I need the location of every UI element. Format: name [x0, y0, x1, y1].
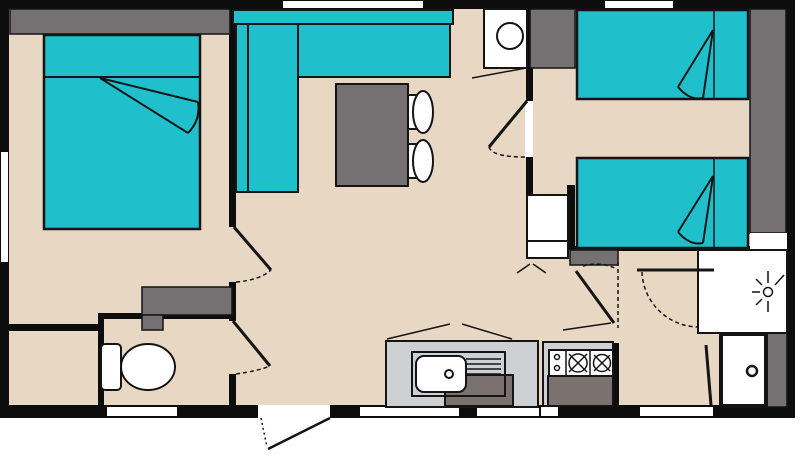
double-bed: [44, 35, 200, 229]
floor-plan-canvas: [0, 0, 800, 457]
kitchen-side-cabinet: [570, 250, 618, 265]
window-kitchen-2: [477, 407, 539, 416]
oven-front: [548, 376, 613, 406]
window-top-living: [283, 1, 423, 8]
storage-cabinet-upper: [527, 195, 568, 241]
toilet-tank: [101, 344, 121, 390]
sofa-backrest: [233, 10, 453, 24]
wall-bedroom-lower: [229, 374, 236, 405]
dresser: [142, 287, 232, 315]
washbasin: [721, 334, 766, 406]
wall-bedroom-upper: [229, 9, 236, 227]
single-bed-2: [577, 158, 748, 248]
window-bathroom: [640, 407, 713, 416]
hall-wardrobe: [530, 9, 575, 68]
sink-faucet-icon: [445, 370, 453, 378]
entry-door-opening: [258, 405, 330, 418]
storage-cabinet-lower: [527, 241, 568, 258]
wardrobe-master: [10, 9, 230, 34]
single-bed-1: [577, 10, 748, 99]
wall-living-lower: [526, 157, 533, 195]
shower-tray-corner: [750, 233, 787, 250]
dining-table: [336, 84, 408, 186]
window-kitchen-3: [541, 407, 558, 416]
entry-door-swing: [261, 418, 267, 447]
water-heater-dial-icon: [497, 23, 523, 49]
toilet-bowl: [121, 344, 175, 390]
window-kitchen-1: [360, 407, 459, 416]
shower: [698, 250, 787, 333]
stool-1: [413, 91, 433, 133]
sofa-seat: [298, 24, 450, 77]
wall-bedroom-bottom: [9, 324, 102, 331]
stool-2: [413, 140, 433, 182]
window-wc: [107, 407, 177, 416]
floor-plan: [0, 0, 800, 457]
entry-door-leaf: [268, 418, 330, 449]
window-top-twin: [605, 1, 673, 8]
bathroom-side-cabinet: [766, 333, 787, 407]
dresser-step: [142, 315, 163, 330]
window-left-bedroom: [1, 152, 8, 262]
sofa-chaise: [236, 24, 298, 192]
living-door-opening: [525, 101, 533, 157]
wardrobe-twin: [750, 9, 786, 233]
sink-bowl: [416, 356, 466, 392]
